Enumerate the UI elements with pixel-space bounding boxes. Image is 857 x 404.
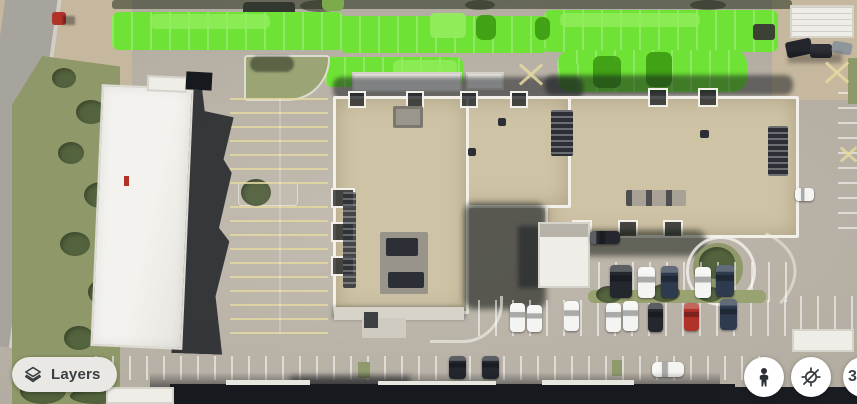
highlighted-vehicle (476, 15, 496, 40)
car (753, 24, 775, 40)
rooftop-unit (393, 106, 423, 128)
parapet-notch (698, 88, 718, 107)
parapet-edge (226, 380, 310, 385)
roof-vent (468, 148, 476, 156)
building-roof-dark (720, 387, 857, 404)
car (638, 267, 655, 298)
google-maps-satellite-view[interactable]: Layers 3 (0, 0, 857, 404)
building-roof-dark (186, 71, 213, 90)
tree-shadow (250, 56, 294, 72)
tree (465, 0, 495, 10)
highlight-bright-patch (150, 14, 270, 29)
building-roof-dark (170, 384, 735, 404)
roof-vent (700, 130, 709, 138)
car (606, 303, 621, 332)
satellite-scene (0, 0, 857, 404)
building-roof-white (90, 84, 193, 350)
parapet-edge (542, 380, 634, 385)
tree (64, 326, 94, 350)
parapet-notch (460, 91, 478, 108)
grass-patch (322, 0, 344, 11)
highlighted-vehicle (535, 17, 550, 40)
car-shadow (63, 16, 75, 25)
tree (690, 0, 726, 10)
car (527, 305, 542, 332)
parapet-edge (378, 381, 496, 385)
parapet-notch (648, 88, 668, 107)
rooftop-unit (551, 110, 573, 156)
car (684, 303, 699, 331)
building-roof-white (106, 387, 174, 404)
entrance-canopy (538, 222, 590, 288)
pegman-icon (754, 367, 774, 388)
car (795, 188, 814, 201)
layers-button[interactable]: Layers (12, 357, 117, 392)
parapet-notch (510, 91, 528, 108)
entry-recess (364, 312, 378, 328)
roof-vent (124, 176, 129, 186)
car (720, 299, 737, 330)
layers-button-label: Layers (51, 366, 101, 383)
rooftop-unit (768, 126, 788, 176)
building-roof-white (792, 329, 854, 352)
rooftop-unit (343, 192, 356, 288)
location-disabled-icon (800, 366, 822, 388)
building-shadow (545, 75, 793, 95)
x-marking (518, 58, 544, 88)
rooftop-unit (626, 190, 686, 206)
street-view-button[interactable] (744, 357, 784, 397)
rooftop-unit (388, 272, 424, 288)
tree (58, 142, 84, 164)
car (716, 265, 734, 297)
car (610, 265, 632, 298)
car (590, 231, 620, 244)
highlighted-vehicle (430, 13, 466, 38)
building-shadow (518, 226, 540, 288)
edge-partial-label: 3 (848, 368, 857, 386)
car (623, 301, 638, 331)
parking-stripes (838, 92, 857, 242)
location-disabled-button[interactable] (791, 357, 831, 397)
layers-icon (24, 366, 42, 384)
trailer-building (790, 5, 854, 38)
building-main-east-wing (545, 96, 799, 238)
tree (52, 68, 76, 88)
car (661, 266, 678, 298)
tree (60, 232, 90, 256)
car (648, 303, 663, 332)
building-roof-white (147, 75, 188, 93)
highlight-bright-patch (560, 13, 700, 27)
car (510, 303, 525, 332)
x-marking (824, 55, 850, 87)
rooftop-unit (386, 238, 418, 256)
car (695, 267, 711, 298)
roof-vent (498, 118, 506, 126)
x-marking (840, 140, 857, 166)
parking-divider-line (279, 98, 281, 334)
parapet-notch (348, 91, 366, 108)
car (564, 301, 579, 331)
